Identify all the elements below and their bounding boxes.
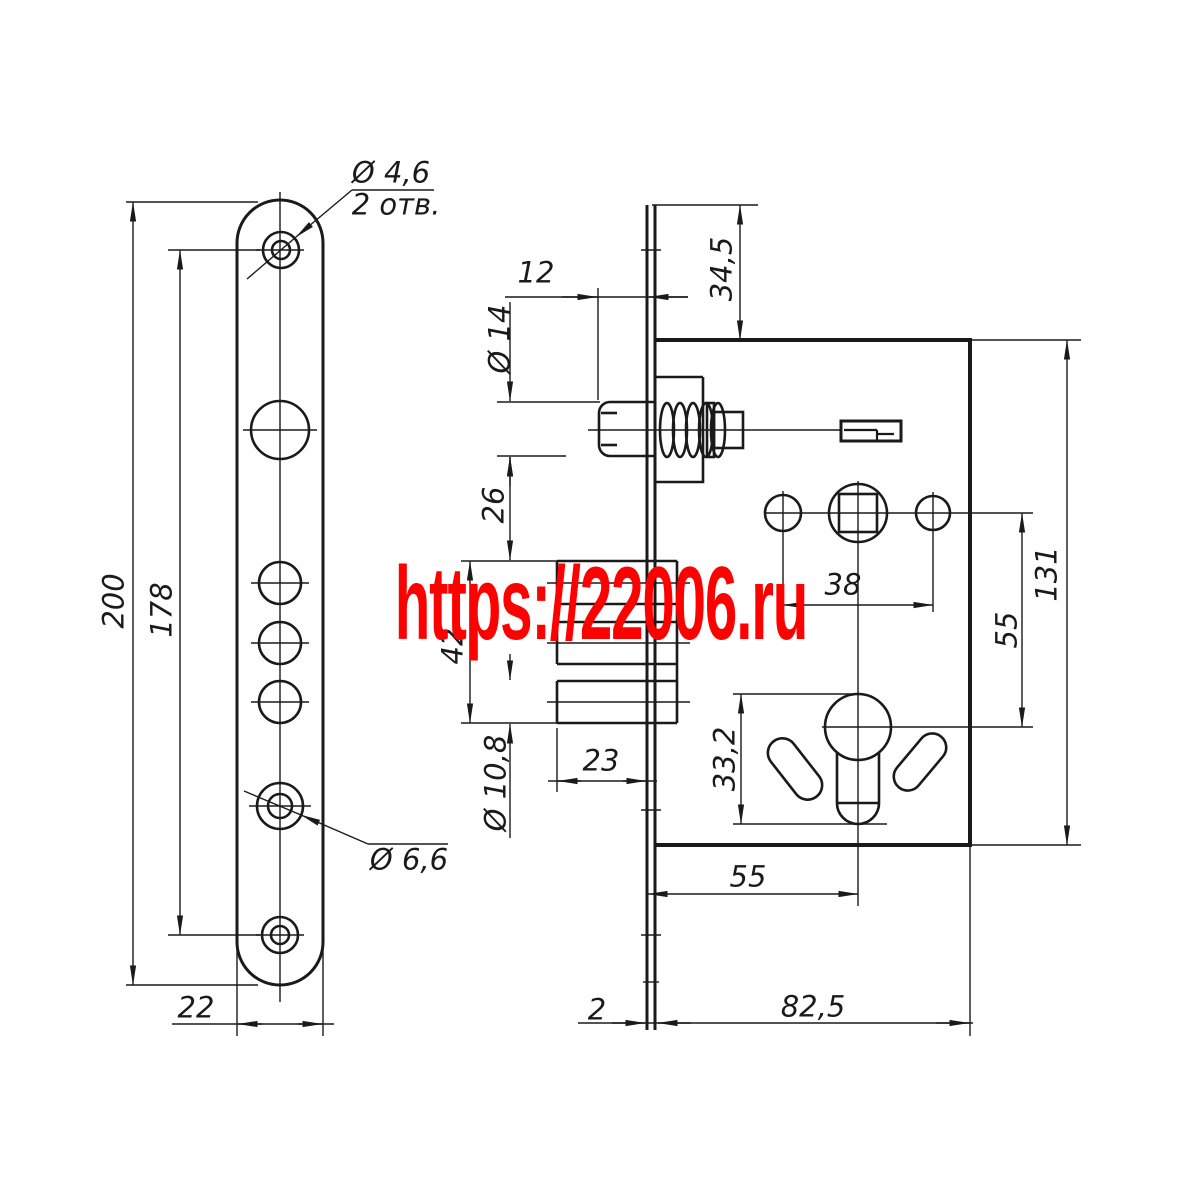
dim-latch-dia: Ø 14 <box>486 305 515 374</box>
dim-latch-to-deadbolt: 26 <box>480 487 509 524</box>
dim-deadbolt-pin-dia: Ø 10,8 <box>482 735 511 832</box>
dim-hole-bottom-dia: Ø 6,6 <box>370 846 448 875</box>
dim-spindle-to-cylinder: 55 <box>993 612 1022 649</box>
lock-technical-drawing: Ø 4,6 2 отв. 200 178 22 Ø 6,6 12 34,5 Ø … <box>0 0 1200 1200</box>
dim-deadbolt-throw: 23 <box>583 747 620 776</box>
dim-backset: 55 <box>730 863 767 892</box>
dim-plate-width: 22 <box>178 994 215 1023</box>
dim-latch-top-offset: 34,5 <box>708 237 737 302</box>
dim-latch-protrusion: 12 <box>518 259 555 288</box>
dim-fixing-holes-span: 38 <box>825 571 862 600</box>
dim-hole-top-count: 2 отв. <box>352 191 441 220</box>
dim-hole-span: 178 <box>148 582 177 637</box>
faceplate-centerlines <box>243 192 317 1002</box>
slot-hole-right <box>888 728 952 797</box>
dim-body-height: 131 <box>1033 546 1062 601</box>
stop-slider <box>841 421 901 441</box>
dim-body-depth: 82,5 <box>781 993 846 1022</box>
watermark-url: https://22006.ru <box>395 552 808 656</box>
dim-cylinder-hole-height: 33,2 <box>711 727 740 792</box>
dim-total-height: 200 <box>100 573 129 628</box>
slot-hole-left <box>762 732 828 805</box>
dim-hole-top-dia: Ø 4,6 <box>352 159 430 188</box>
dim-faceplate-thickness: 2 <box>588 996 606 1025</box>
